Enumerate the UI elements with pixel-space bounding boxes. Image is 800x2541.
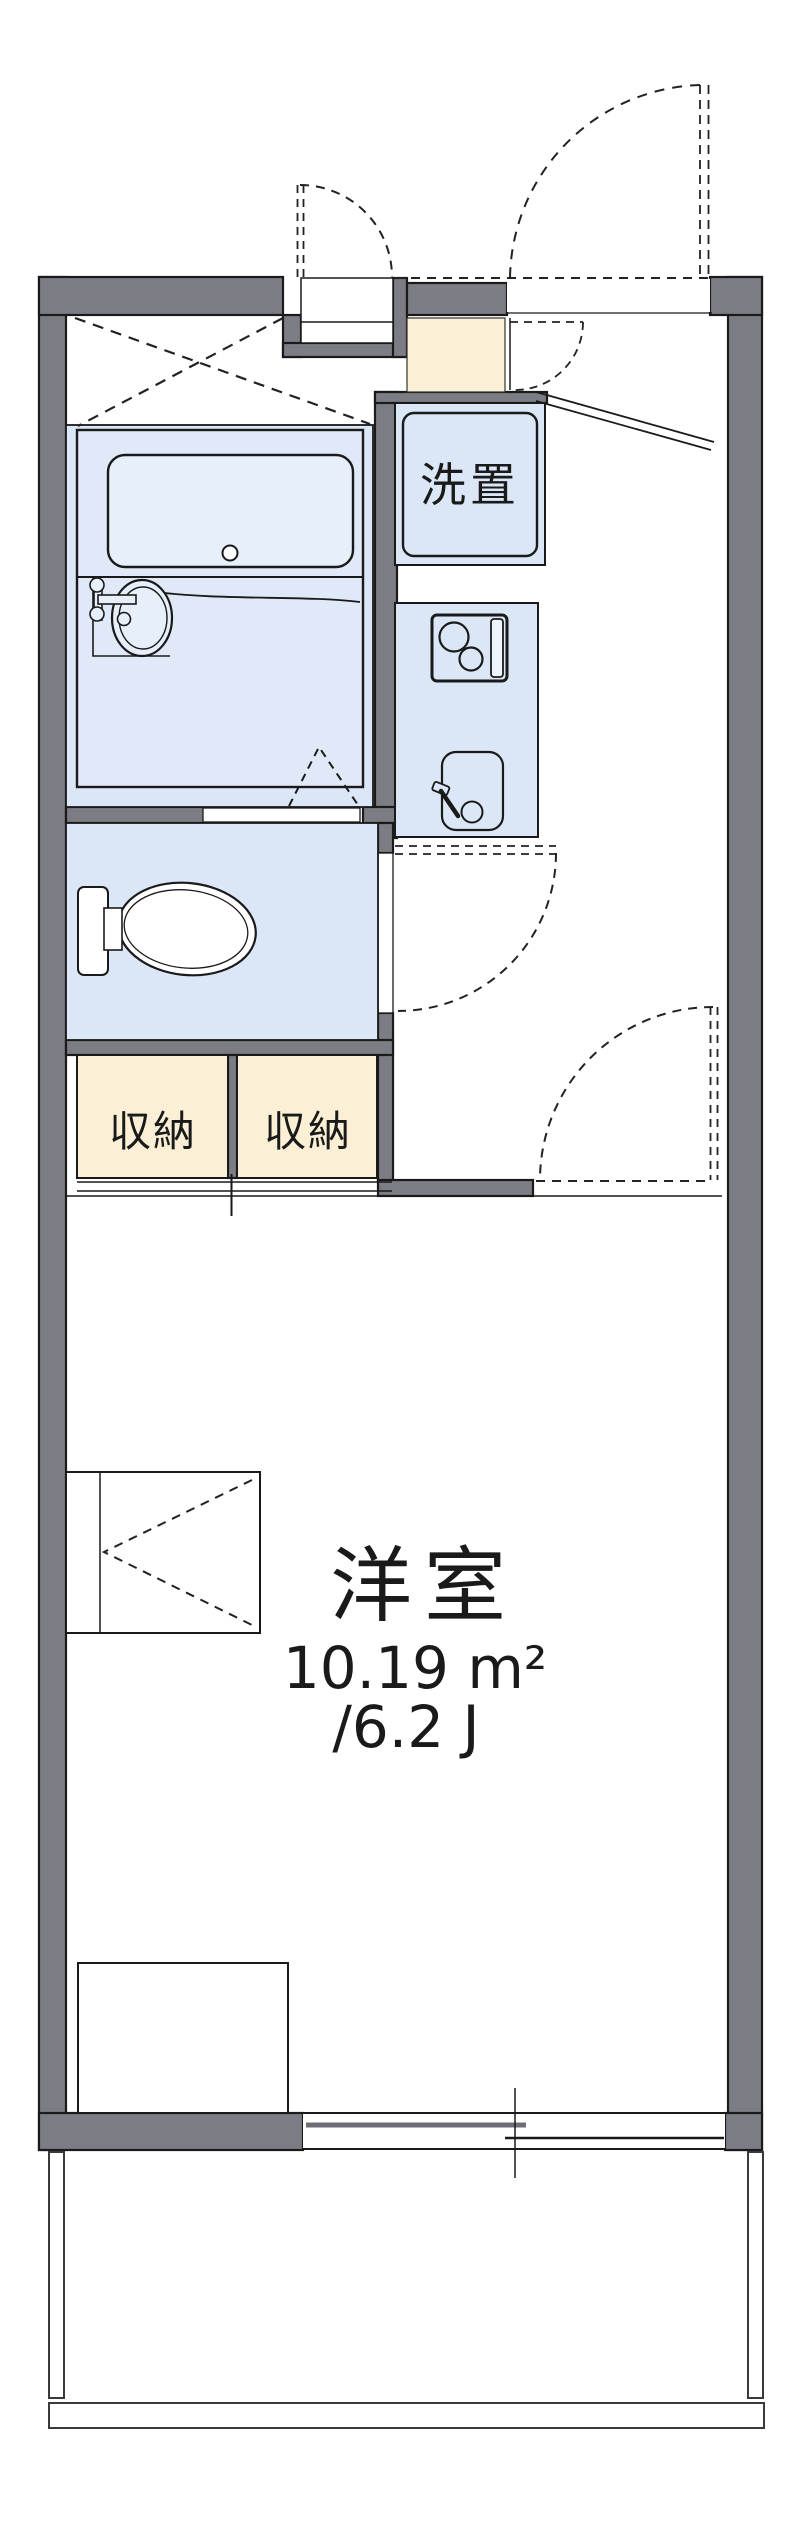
floorplan-canvas: 洗置 収納 収納 洋室 10.19 m² /6.2 J: [0, 0, 800, 2541]
room-area-tatami-label: /6.2 J: [332, 1693, 479, 1761]
side-window-box: [66, 1472, 260, 1633]
bath-faucet-knob-top: [90, 578, 104, 592]
stove-side-bar: [491, 619, 503, 677]
wall-hall-room-bar: [378, 1180, 533, 1196]
wall-top-mid-segment: [407, 283, 507, 315]
balcony: [49, 2152, 764, 2428]
kitchen-sink: [442, 752, 503, 830]
wall-bath-bottom-left: [66, 807, 207, 823]
bath-faucet-spout: [98, 595, 136, 604]
genkan-entry-floor: [407, 318, 505, 392]
room-name-label: 洋室: [330, 1539, 518, 1634]
wall-toilet-bottom: [66, 1040, 393, 1055]
toilet-doorway-gap: [378, 853, 393, 1013]
wall-alcove-bottom-bar: [283, 343, 407, 357]
wall-genkan-bar: [375, 392, 547, 403]
wall-bath-bottom-right: [363, 807, 397, 823]
washer-space-label: 洗置: [420, 458, 520, 512]
wall-alcove-right-jog: [393, 278, 407, 357]
room-area-sqm-label: 10.19 m²: [283, 1634, 547, 1702]
genkan-swing-arc: [515, 322, 583, 390]
room-features: [66, 1472, 288, 2113]
genkan-step-diagonal1: [536, 392, 714, 442]
bathroom-unit: [77, 430, 363, 806]
storage-left-label: 収納: [109, 1107, 197, 1156]
balcony-rail-bottom: [49, 2403, 764, 2428]
wall-bottom-left: [39, 2113, 303, 2150]
room-door-swing-arc: [540, 1007, 713, 1180]
x-mark-line2: [78, 318, 283, 426]
storage-right-label: 収納: [264, 1107, 352, 1156]
bathtub-drain: [223, 546, 238, 561]
alcove-door-swing-arc: [300, 185, 392, 277]
balcony-window-gap: [303, 2113, 725, 2150]
wall-top-left-segment: [39, 277, 283, 315]
bathroom-doorway-gap: [203, 808, 360, 822]
bath-faucet-knob-bottom: [90, 607, 104, 621]
genkan-step-diagonal2: [536, 401, 711, 450]
room-fixture-box: [78, 1963, 288, 2113]
wall-closet-divider: [228, 1055, 237, 1178]
washbasin-drain: [118, 613, 131, 626]
floorplan-page: 洗置 収納 収納 洋室 10.19 m² /6.2 J: [0, 0, 800, 2541]
balcony-rail-left: [49, 2152, 64, 2398]
wall-toilet-right-bottom: [378, 1013, 393, 1183]
alcove-door-recess: [301, 278, 393, 343]
balcony-rail-right: [748, 2152, 763, 2398]
toilet-door-swing-arc: [398, 853, 556, 1011]
wall-bottom-right: [725, 2113, 762, 2150]
wall-toilet-right-top: [378, 823, 393, 853]
entrance-doorway-band: [507, 279, 710, 312]
wall-kitchen-divider: [375, 392, 397, 838]
entrance-door-swing-arc: [510, 85, 700, 278]
wall-left: [39, 277, 66, 2150]
wall-entrance-corner-block: [710, 277, 762, 315]
wall-right: [728, 277, 762, 2150]
toilet-seat-hinge: [104, 908, 122, 950]
